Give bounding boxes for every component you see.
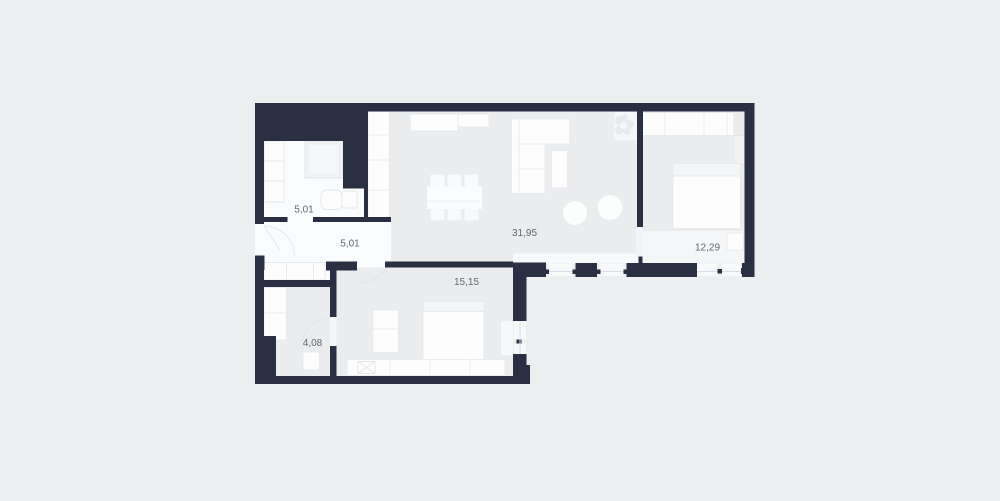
svg-text:31,95: 31,95 bbox=[512, 228, 537, 239]
svg-text:12,29: 12,29 bbox=[695, 243, 720, 254]
svg-text:4,08: 4,08 bbox=[303, 338, 323, 349]
svg-text:5,01: 5,01 bbox=[294, 205, 314, 216]
svg-text:5,01: 5,01 bbox=[340, 239, 360, 250]
svg-text:15,15: 15,15 bbox=[454, 277, 479, 288]
